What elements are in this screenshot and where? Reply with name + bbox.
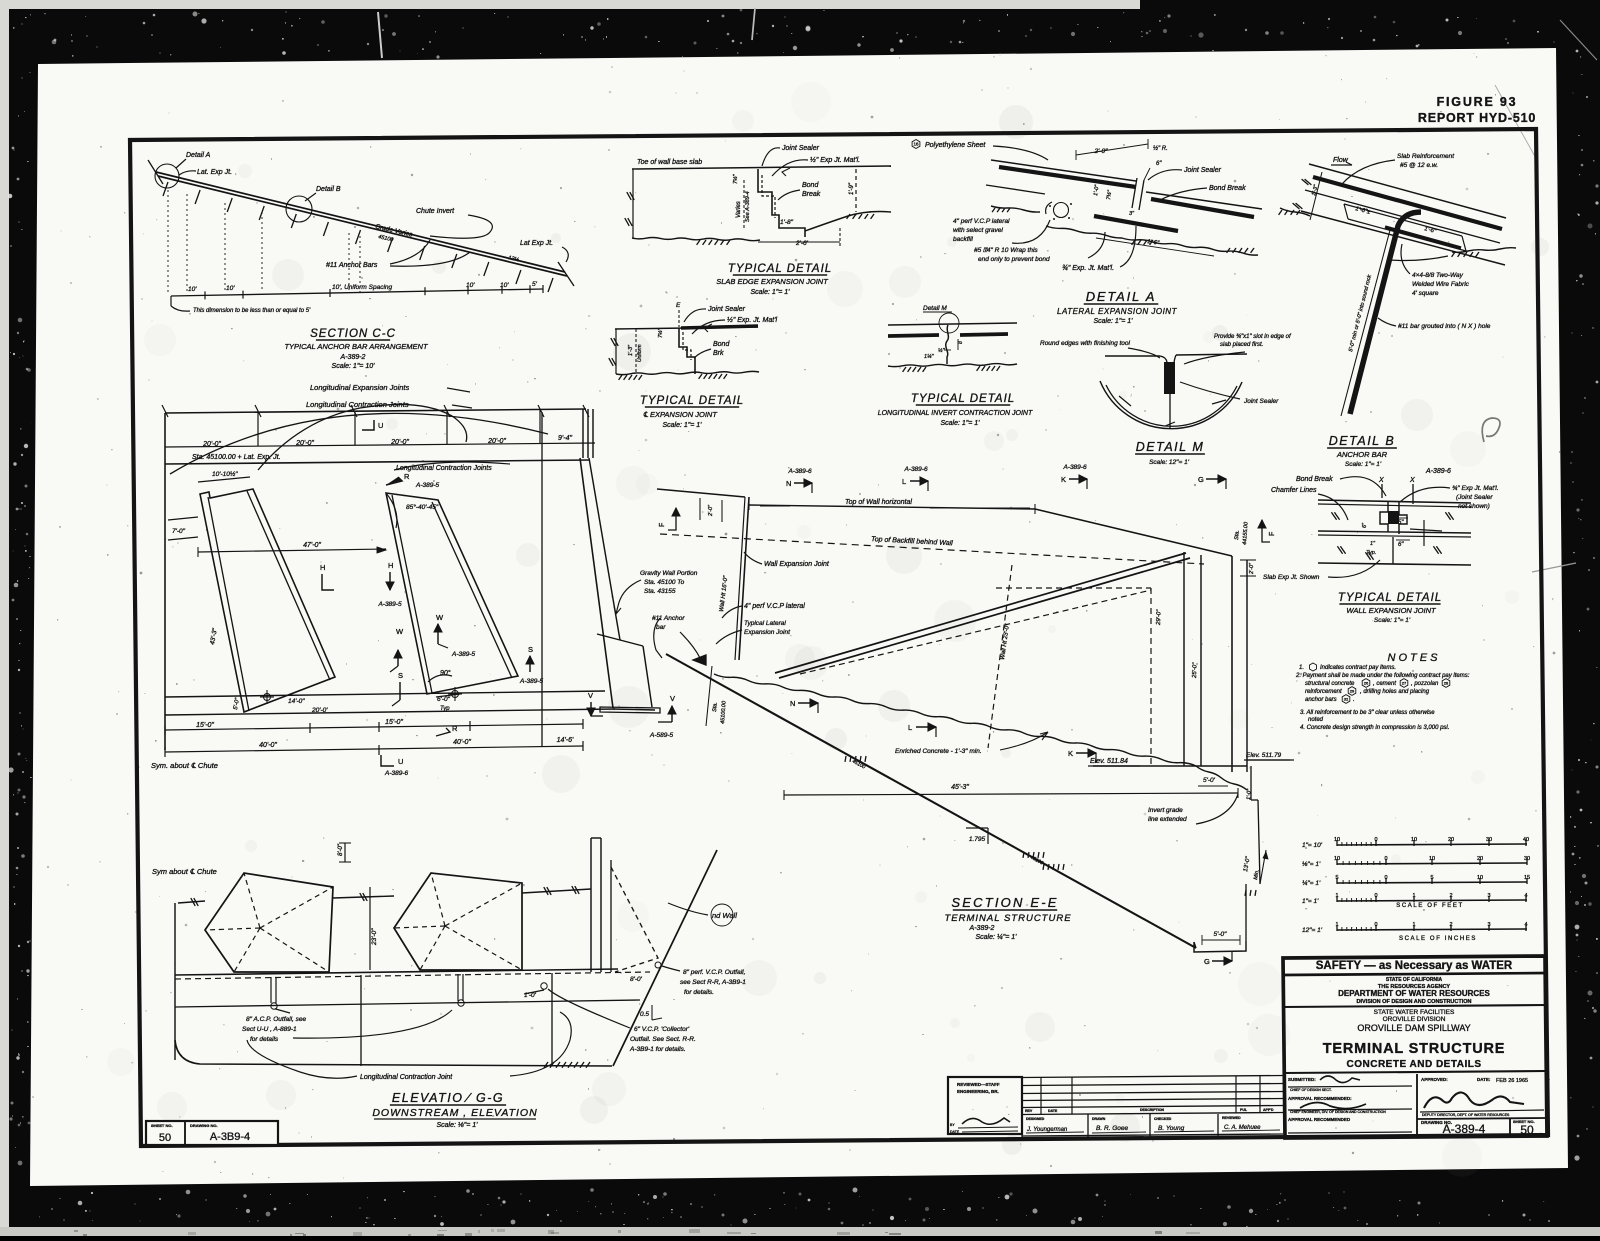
svg-text:¾" Exp Jt. Mat'l.: ¾" Exp Jt. Mat'l. <box>1452 485 1499 492</box>
svg-text:K: K <box>1061 475 1066 484</box>
svg-text:45'-3": 45'-3" <box>951 784 969 791</box>
svg-text:8" perf. V.C.P. Outfall,: 8" perf. V.C.P. Outfall, <box>683 969 746 976</box>
svg-text:SECTION C-C: SECTION C-C <box>310 328 396 340</box>
svg-text:Joint Sealer: Joint Sealer <box>781 145 820 152</box>
svg-text:see Sect R-R, A-3B9-1: see Sect R-R, A-3B9-1 <box>680 979 746 986</box>
svg-text:L: L <box>902 477 906 486</box>
svg-text:APPROVAL RECOMMENDED: APPROVAL RECOMMENDED <box>1288 1117 1351 1122</box>
svg-text:SUBMITTED:: SUBMITTED: <box>1288 1077 1316 1082</box>
svg-text:APPROVED:: APPROVED: <box>1421 1077 1448 1082</box>
svg-text:Provide ¾"x1" slot in edge of: Provide ¾"x1" slot in edge of <box>1214 334 1292 340</box>
svg-text:Longitudinal Contraction Join: Longitudinal Contraction Joints <box>396 465 492 472</box>
svg-text:Bond Break: Bond Break <box>1296 476 1333 483</box>
svg-text:Joint Sealer: Joint Sealer <box>707 306 746 313</box>
svg-text:8'-0": 8'-0" <box>338 843 344 856</box>
svg-text:Bond Break: Bond Break <box>1209 185 1246 192</box>
svg-text:1: 1 <box>1335 893 1338 899</box>
svg-text:Detail M: Detail M <box>923 305 947 312</box>
svg-text:WALL EXPANSION JOINT: WALL EXPANSION JOINT <box>1346 606 1437 615</box>
svg-text:bar: bar <box>656 624 666 631</box>
svg-text:LATERAL EXPANSION JOINT: LATERAL EXPANSION JOINT <box>1057 307 1178 316</box>
svg-text:#11 bar grouted into ( N X ): #11 bar grouted into ( N X ) hole <box>1398 323 1491 330</box>
svg-text:R: R <box>404 472 410 481</box>
svg-text:6": 6" <box>1398 542 1404 548</box>
svg-text:Scale: ⅛"= 1': Scale: ⅛"= 1' <box>437 1122 479 1129</box>
svg-text:1¼": 1¼" <box>924 354 935 360</box>
svg-text:50: 50 <box>1520 1123 1534 1137</box>
svg-text:10: 10 <box>1411 837 1417 843</box>
svg-text:DEPUTY DIRECTOR, DEPT. OF WATE: DEPUTY DIRECTOR, DEPT. OF WATER RESOURCE… <box>1422 1113 1510 1117</box>
svg-text:TYPICAL DETAIL: TYPICAL DETAIL <box>911 393 1015 405</box>
svg-text:4" perf V.C.P lateral: 4" perf V.C.P lateral <box>744 603 805 610</box>
svg-text:Invert grade: Invert grade <box>1148 807 1183 814</box>
svg-text:Sta. 45100 To: Sta. 45100 To <box>644 579 685 586</box>
svg-text:Typ: Typ <box>440 706 450 712</box>
svg-text:¾" Exp. Jt. Mat'l.: ¾" Exp. Jt. Mat'l. <box>1062 265 1114 272</box>
svg-text:noted: noted <box>1308 717 1324 723</box>
svg-text:2: 2 <box>1449 893 1452 899</box>
svg-text:SHEET NO.: SHEET NO. <box>151 1123 173 1128</box>
svg-text:Top of Wall horizontal: Top of Wall horizontal <box>845 499 912 506</box>
svg-text:1.795: 1.795 <box>969 836 986 843</box>
svg-text:A-389-5: A-389-5 <box>415 482 440 489</box>
svg-text:4×4-8/8 Two-Way: 4×4-8/8 Two-Way <box>1412 272 1464 279</box>
svg-text:40: 40 <box>1523 837 1529 843</box>
svg-text:A-3B9-4: A-3B9-4 <box>210 1131 250 1143</box>
svg-text:K: K <box>1068 749 1073 758</box>
svg-text:5: 5 <box>1335 875 1338 881</box>
svg-text:5'-0": 5'-0" <box>1214 931 1228 938</box>
svg-text:H: H <box>320 563 325 572</box>
svg-text:PUL: PUL <box>1240 1108 1248 1112</box>
svg-text:TYPICAL DETAIL: TYPICAL DETAIL <box>728 263 832 275</box>
svg-text:8: 8 <box>958 341 964 344</box>
svg-text:2'-0": 2'-0" <box>1094 148 1109 155</box>
svg-text:Typ.: Typ. <box>1366 550 1376 556</box>
svg-text:See A-389-4: See A-389-4 <box>745 191 751 222</box>
svg-text:9'-4": 9'-4" <box>558 435 572 442</box>
svg-text:N: N <box>790 699 795 708</box>
svg-text:Sta. 45100.00 + Lat. Exp. Jt.: Sta. 45100.00 + Lat. Exp. Jt. <box>192 454 281 461</box>
svg-text:A-389-6: A-389-6 <box>903 466 928 473</box>
svg-text:℄ EXPANSION JOINT: ℄ EXPANSION JOINT <box>643 410 718 419</box>
svg-text:backfill: backfill <box>953 236 973 243</box>
svg-text:STATE OF CALIFORNIA: STATE OF CALIFORNIA <box>1386 977 1443 983</box>
svg-text:Gravity Wall Portion: Gravity Wall Portion <box>640 570 698 577</box>
svg-text:5: 5 <box>1430 875 1433 881</box>
svg-text:DETAIL B: DETAIL B <box>1329 434 1395 448</box>
svg-text:30: 30 <box>1524 856 1530 862</box>
svg-text:Slab Reinforcement: Slab Reinforcement <box>1397 153 1455 160</box>
svg-text:40'-0": 40'-0" <box>259 742 277 749</box>
svg-text:5'-0': 5'-0' <box>1203 777 1216 784</box>
svg-text:15: 15 <box>1524 875 1530 881</box>
svg-text:4" perf V.C.P lateral: 4" perf V.C.P lateral <box>953 218 1010 225</box>
svg-text:Indicates contract pay item: Indicates contract pay items. <box>1320 665 1396 671</box>
svg-text:6": 6" <box>1156 161 1162 167</box>
svg-text:½" Exp. Jt. Mat'l: ½" Exp. Jt. Mat'l <box>727 316 778 324</box>
svg-text:REVIEWED—STAFF: REVIEWED—STAFF <box>957 1082 1000 1087</box>
svg-text:Welded Wire Fabric: Welded Wire Fabric <box>1412 281 1470 288</box>
svg-text:A-389-6: A-389-6 <box>384 770 409 777</box>
svg-text:2. Payment shall be made u: 2. Payment shall be made under the follo… <box>1295 673 1470 679</box>
svg-text:Chamfer Lines: Chamfer Lines <box>1271 487 1317 494</box>
svg-text:CHIEF OF DESIGN SECT.: CHIEF OF DESIGN SECT. <box>1290 1088 1332 1092</box>
svg-text:⅛"= 1': ⅛"= 1' <box>1302 861 1321 868</box>
svg-text:SECTION E-E: SECTION E-E <box>951 895 1058 910</box>
svg-text:structural concrete: structural concrete <box>1305 681 1355 687</box>
svg-text:X: X <box>1378 477 1384 484</box>
svg-text:Typical Lateral: Typical Lateral <box>744 620 786 627</box>
svg-text:TERMINAL STRUCTURE: TERMINAL STRUCTURE <box>944 913 1071 924</box>
svg-text:1: 1 <box>1335 922 1338 928</box>
svg-text:Polyethylene Sheet: Polyethylene Sheet <box>925 142 986 149</box>
svg-text:14'-6': 14'-6' <box>557 737 574 744</box>
svg-text:1'-3": 1'-3" <box>628 344 634 356</box>
svg-text:Brk: Brk <box>713 350 724 357</box>
svg-text:Varies: Varies <box>736 201 742 218</box>
svg-text:APPROVAL RECOMMENDED:: APPROVAL RECOMMENDED: <box>1288 1096 1352 1101</box>
svg-text:8" A.C.P. Outfall, see: 8" A.C.P. Outfall, see <box>246 1016 307 1023</box>
svg-text:Scale: 12"= 1': Scale: 12"= 1' <box>1149 459 1190 466</box>
svg-text:Scale: 1"= 1': Scale: 1"= 1' <box>940 420 980 427</box>
svg-text:FEB 26 1965: FEB 26 1965 <box>1496 1078 1528 1084</box>
svg-text:Sym. about ℄ Chute: Sym. about ℄ Chute <box>151 761 218 770</box>
svg-text:Enriched Concrete - 1'-3" min: Enriched Concrete - 1'-3" min. <box>895 748 982 755</box>
svg-text:anchor bars: anchor bars <box>1305 697 1337 703</box>
svg-text:DRAWING NO.: DRAWING NO. <box>190 1123 218 1128</box>
svg-text:DATE: DATE <box>1048 1109 1058 1113</box>
svg-text:SCALE OF FEET: SCALE OF FEET <box>1396 903 1463 909</box>
svg-text:20: 20 <box>1477 856 1483 862</box>
svg-text:with select gravel: with select gravel <box>953 227 1003 234</box>
svg-text:.: . <box>1353 697 1355 703</box>
svg-text:F: F <box>1269 532 1276 536</box>
svg-text:7½": 7½" <box>657 327 664 338</box>
svg-text:Sta.: Sta. <box>712 702 719 712</box>
svg-text:S: S <box>398 671 403 680</box>
svg-text:DOWNSTREAM , ELEVATION: DOWNSTREAM , ELEVATION <box>372 1107 537 1119</box>
svg-text:Round edges with finishing too: Round edges with finishing tool <box>1040 340 1131 347</box>
svg-text:Longitudinal Contraction Joint: Longitudinal Contraction Joint <box>360 1074 453 1081</box>
svg-text:29'-0": 29'-0" <box>1156 609 1163 626</box>
svg-text:N: N <box>786 479 791 488</box>
svg-text:B. Young: B. Young <box>1158 1125 1185 1132</box>
svg-text:12"= 1': 12"= 1' <box>1302 927 1323 934</box>
svg-text:end only to prevent bond: end only to prevent bond <box>978 256 1050 263</box>
svg-text:A-389-5: A-389-5 <box>451 651 476 658</box>
svg-text:V: V <box>588 691 593 700</box>
svg-text:8'-0': 8'-0' <box>630 976 643 983</box>
svg-text:5': 5' <box>532 281 538 288</box>
svg-text:#5 ⍔4" R 10 Wrap this: #5 ⍔4" R 10 Wrap this <box>974 247 1038 254</box>
svg-text:slab placed first.: slab placed first. <box>1220 342 1263 348</box>
svg-text:A-389-6: A-389-6 <box>1062 464 1087 471</box>
svg-text:DRAWN: DRAWN <box>1092 1117 1106 1121</box>
svg-text:A-389-6: A-389-6 <box>1425 468 1451 475</box>
svg-text:#5 @ 12 e.w.: #5 @ 12 e.w. <box>1400 162 1438 169</box>
svg-text:10', Uniform Spacing: 10', Uniform Spacing <box>332 284 393 291</box>
svg-text:DEPARTMENT OF WATER RESOURCES: DEPARTMENT OF WATER RESOURCES <box>1338 989 1490 998</box>
svg-text:½": ½" <box>938 347 946 354</box>
svg-text:Joint Sealer: Joint Sealer <box>1183 167 1222 174</box>
svg-text:¼"= 1': ¼"= 1' <box>1302 880 1321 887</box>
svg-text:Scale: 1"= 10': Scale: 1"= 10' <box>332 363 376 370</box>
svg-text:Uniform: Uniform <box>637 344 643 362</box>
svg-text:3. All reinforcement to be: 3. All reinforcement to be 3" clear unle… <box>1300 710 1435 716</box>
svg-text:STATE WATER FACILITIES: STATE WATER FACILITIES <box>1374 1009 1455 1016</box>
svg-text:for details.: for details. <box>684 989 714 996</box>
svg-text:14'-0": 14'-0" <box>288 698 305 705</box>
svg-text:Elev. 511.79: Elev. 511.79 <box>1246 752 1282 759</box>
svg-text:CHIEF ENGINEER, DIV. OF DESIGN: CHIEF ENGINEER, DIV. OF DESIGN AND CONST… <box>1290 1110 1386 1114</box>
svg-text:not shown): not shown) <box>1458 503 1490 510</box>
svg-text:L: L <box>908 723 912 732</box>
svg-text:15'-0": 15'-0" <box>196 722 214 729</box>
svg-text:4: 4 <box>1524 922 1527 928</box>
svg-text:3: 3 <box>1487 922 1490 928</box>
svg-text:1: 1 <box>1412 893 1415 899</box>
svg-text:20: 20 <box>1448 837 1454 843</box>
svg-text:10: 10 <box>1429 856 1435 862</box>
svg-text:W: W <box>396 627 404 636</box>
svg-text:30: 30 <box>1486 837 1492 843</box>
svg-text:Chute Invert: Chute Invert <box>416 208 455 215</box>
svg-text:10': 10' <box>466 282 475 289</box>
svg-text:32: 32 <box>1344 696 1349 701</box>
svg-text:1"= 1': 1"= 1' <box>1302 898 1319 905</box>
svg-text:85°-40'-45": 85°-40'-45" <box>406 503 439 511</box>
svg-text:Detail B: Detail B <box>316 186 341 193</box>
svg-text:Sym about ℄ Chute: Sym about ℄ Chute <box>152 867 217 876</box>
svg-text:4. Concrete design strength: 4. Concrete design strength in compressi… <box>1300 725 1449 731</box>
svg-text:ELEVATIO ⁄ G-G: ELEVATIO ⁄ G-G <box>392 1091 504 1105</box>
svg-text:10': 10' <box>188 286 197 293</box>
svg-text:Scale: 1"= 1': Scale: 1"= 1' <box>1093 318 1133 325</box>
svg-text:Toe of wall base slab: Toe of wall base slab <box>637 159 702 166</box>
svg-text:A-3B9-1 for details.: A-3B9-1 for details. <box>629 1046 686 1053</box>
svg-text:0: 0 <box>1384 856 1387 862</box>
svg-text:47'-0": 47'-0" <box>303 542 321 549</box>
svg-text:Longitudinal Expansion Joints: Longitudinal Expansion Joints <box>310 383 409 392</box>
svg-text:1: 1 <box>1412 922 1415 928</box>
svg-text:10'-10½": 10'-10½" <box>212 470 238 478</box>
svg-text:Scale: 1"= 1': Scale: 1"= 1' <box>662 422 702 429</box>
svg-text:B. R. Goee: B. R. Goee <box>1096 1125 1129 1132</box>
svg-text:2: 2 <box>1449 922 1452 928</box>
svg-text:REV: REV <box>1025 1109 1033 1113</box>
svg-text:2'-6': 2'-6' <box>795 240 809 247</box>
svg-text:1'-0": 1'-0" <box>1246 788 1253 800</box>
svg-text:APP'D: APP'D <box>1263 1108 1274 1112</box>
svg-text:Longitudinal Contraction Joint: Longitudinal Contraction Joints <box>306 400 409 409</box>
svg-text:27: 27 <box>1402 680 1407 685</box>
svg-text:W: W <box>436 613 444 622</box>
svg-text:1'-0': 1'-0' <box>524 992 537 999</box>
svg-text:4: 4 <box>1524 893 1527 899</box>
svg-text:U: U <box>398 757 403 766</box>
svg-text:15'-0": 15'-0" <box>385 719 403 726</box>
svg-text:10': 10' <box>500 282 509 289</box>
svg-text:Expansion Joint: Expansion Joint <box>744 629 791 636</box>
svg-text:1"= 10': 1"= 10' <box>1302 842 1323 849</box>
svg-text:29: 29 <box>1350 688 1355 693</box>
svg-text:F: F <box>659 523 666 527</box>
svg-text:5": 5" <box>1398 520 1404 526</box>
svg-text:This dimension to be less than: This dimension to be less than or equal … <box>193 308 311 314</box>
svg-text:10: 10 <box>1477 875 1483 881</box>
svg-text:, drilling holes and plac: , drilling holes and placing <box>1360 689 1430 695</box>
svg-text:NOTES: NOTES <box>1388 652 1441 664</box>
svg-text:6" V.C.P. 'Collector': 6" V.C.P. 'Collector' <box>634 1026 690 1033</box>
svg-text:1'-8": 1'-8" <box>780 219 794 226</box>
svg-text:TYPICAL ANCHOR BAR ARRANGEMENT: TYPICAL ANCHOR BAR ARRANGEMENT <box>284 342 428 351</box>
svg-text:DESIGNED: DESIGNED <box>1026 1117 1045 1121</box>
svg-text:, pozzolan: , pozzolan <box>1411 681 1439 687</box>
svg-text:Bond: Bond <box>713 341 730 348</box>
svg-text:TERMINAL STRUCTURE: TERMINAL STRUCTURE <box>1323 1041 1506 1057</box>
svg-text:10: 10 <box>1334 856 1340 862</box>
svg-text:Joint Sealer: Joint Sealer <box>1243 398 1279 405</box>
svg-text:ENGINEERING, BR.: ENGINEERING, BR. <box>957 1089 999 1094</box>
svg-text:½" R.: ½" R. <box>1153 145 1168 152</box>
svg-text:TYPICAL DETAIL: TYPICAL DETAIL <box>640 395 744 407</box>
svg-text:#11 Anchor Bars: #11 Anchor Bars <box>326 262 378 269</box>
svg-text:23'-0": 23'-0" <box>371 928 378 946</box>
svg-text:40'-0": 40'-0" <box>453 739 471 746</box>
svg-text:0: 0 <box>1374 837 1377 843</box>
svg-text:REPORT HYD-510: REPORT HYD-510 <box>1418 111 1536 125</box>
svg-text:50: 50 <box>159 1132 171 1144</box>
svg-text:½" Exp Jt. Mat'l.: ½" Exp Jt. Mat'l. <box>810 156 860 164</box>
svg-text:26: 26 <box>1364 680 1369 685</box>
svg-text:10': 10' <box>226 285 235 292</box>
svg-text:DESCRIPTION: DESCRIPTION <box>1140 1108 1164 1112</box>
svg-text:A-389-5: A-389-5 <box>377 601 402 608</box>
svg-text:reinforcement: reinforcement <box>1305 689 1342 695</box>
svg-text:Flow: Flow <box>1333 157 1349 164</box>
svg-text:G: G <box>1204 957 1210 966</box>
svg-text:A-589-5: A-589-5 <box>649 732 674 739</box>
svg-text:A-389-5: A-389-5 <box>519 678 544 685</box>
svg-text:Sta.: Sta. <box>1234 530 1241 540</box>
svg-text:2'-0": 2'-0" <box>708 504 714 517</box>
svg-text:E: E <box>676 302 681 309</box>
svg-text:A-389-4: A-389-4 <box>1443 1122 1486 1136</box>
svg-text:10: 10 <box>1334 837 1340 843</box>
svg-text:DETAIL A: DETAIL A <box>1086 289 1157 304</box>
svg-text:Scale: 1"= 1': Scale: 1"= 1' <box>1374 617 1411 624</box>
svg-text:X: X <box>1409 477 1415 484</box>
svg-text:for details: for details <box>250 1036 279 1043</box>
svg-text:DETAIL M: DETAIL M <box>1136 440 1205 454</box>
svg-text:DIVISION OF DESIGN AND CONSTRU: DIVISION OF DESIGN AND CONSTRUCTION <box>1357 999 1472 1005</box>
svg-text:6'-0": 6'-0" <box>437 696 451 703</box>
svg-text:V: V <box>670 694 675 703</box>
svg-text:4' square: 4' square <box>1412 290 1439 297</box>
svg-text:7'-0": 7'-0" <box>172 528 186 535</box>
svg-text:Sect U-U , A-889-1: Sect U-U , A-889-1 <box>242 1026 297 1033</box>
svg-text:DATE: DATE <box>950 1130 960 1134</box>
svg-text:CONCRETE AND DETAILS: CONCRETE AND DETAILS <box>1347 1059 1482 1070</box>
svg-text:3: 3 <box>1487 893 1490 899</box>
svg-text:SLAB EDGE EXPANSION JOINT: SLAB EDGE EXPANSION JOINT <box>716 277 829 286</box>
svg-text:#11 Anchor: #11 Anchor <box>652 615 685 622</box>
svg-text:, cement: , cement <box>1373 681 1396 687</box>
svg-text:Lat. Exp Jt.: Lat. Exp Jt. <box>197 169 232 176</box>
svg-text:16: 16 <box>913 142 919 147</box>
svg-text:A-389-2: A-389-2 <box>340 354 366 361</box>
svg-text:FIGURE 93: FIGURE 93 <box>1437 95 1518 109</box>
svg-text:Detail A: Detail A <box>186 152 211 159</box>
svg-text:Outfall. See Sect. R-R.: Outfall. See Sect. R-R. <box>630 1036 696 1043</box>
svg-text:1'-9": 1'-9" <box>849 182 855 195</box>
svg-text:Scale: 1"= 1': Scale: 1"= 1' <box>1345 461 1382 468</box>
svg-text:SCALE OF INCHES: SCALE OF INCHES <box>1399 936 1477 942</box>
svg-text:2'-0": 2'-0" <box>1249 562 1255 575</box>
svg-text:TYPICAL DETAIL: TYPICAL DETAIL <box>1338 592 1442 604</box>
svg-text:Elev. 511.84: Elev. 511.84 <box>1090 758 1128 765</box>
svg-text:OROVILLE DIVISION: OROVILLE DIVISION <box>1383 1016 1446 1023</box>
svg-text:Break: Break <box>802 191 821 198</box>
svg-text:1.: 1. <box>1299 665 1304 671</box>
svg-text:Scale: ¼"= 1': Scale: ¼"= 1' <box>976 934 1018 941</box>
svg-text:0: 0 <box>1384 875 1387 881</box>
svg-text:A-389-6: A-389-6 <box>787 468 812 475</box>
svg-text:ANCHOR BAR: ANCHOR BAR <box>1336 450 1388 459</box>
svg-text:LONGITUDINAL INVERT CONTRACTI: LONGITUDINAL INVERT CONTRACTION JOINT <box>878 410 1033 417</box>
svg-text:OROVILLE DAM SPILLWAY: OROVILLE DAM SPILLWAY <box>1357 1023 1470 1033</box>
svg-text:Bond: Bond <box>802 182 819 189</box>
svg-text:25'-0": 25'-0" <box>1192 662 1199 679</box>
svg-text:S: S <box>528 645 533 654</box>
svg-text:U: U <box>378 421 383 430</box>
svg-text:REVIEWED: REVIEWED <box>1222 1116 1241 1120</box>
svg-text:0.5: 0.5 <box>640 1011 649 1018</box>
svg-text:BY: BY <box>950 1123 955 1127</box>
svg-text:(Joint Sealer: (Joint Sealer <box>1456 494 1493 501</box>
svg-text:Wall Expansion Joint: Wall Expansion Joint <box>764 561 830 568</box>
svg-text:28: 28 <box>1444 680 1449 685</box>
svg-text:line extended: line extended <box>1148 816 1187 823</box>
svg-text:Sta. 43155: Sta. 43155 <box>644 588 676 595</box>
svg-text:20'-0': 20'-0' <box>311 707 328 714</box>
svg-text:Slab Exp Jt. Shown: Slab Exp Jt. Shown <box>1263 574 1320 581</box>
svg-text:A-389-2: A-389-2 <box>969 925 995 932</box>
svg-text:Scale: 1"= 1': Scale: 1"= 1' <box>750 289 790 296</box>
svg-text:R: R <box>452 724 458 733</box>
svg-text:SAFETY — as Necessary as WATER: SAFETY — as Necessary as WATER <box>1316 960 1513 972</box>
svg-text:0: 0 <box>1374 893 1377 899</box>
svg-text:DATE:: DATE: <box>1477 1077 1491 1082</box>
svg-text:7½": 7½" <box>732 173 739 184</box>
svg-text:G: G <box>1198 475 1204 484</box>
svg-text:0: 0 <box>1374 922 1377 928</box>
svg-text:H: H <box>388 561 393 570</box>
svg-text:Lat Exp Jt.: Lat Exp Jt. <box>520 240 553 247</box>
svg-text:CHECKED: CHECKED <box>1154 1117 1172 1121</box>
